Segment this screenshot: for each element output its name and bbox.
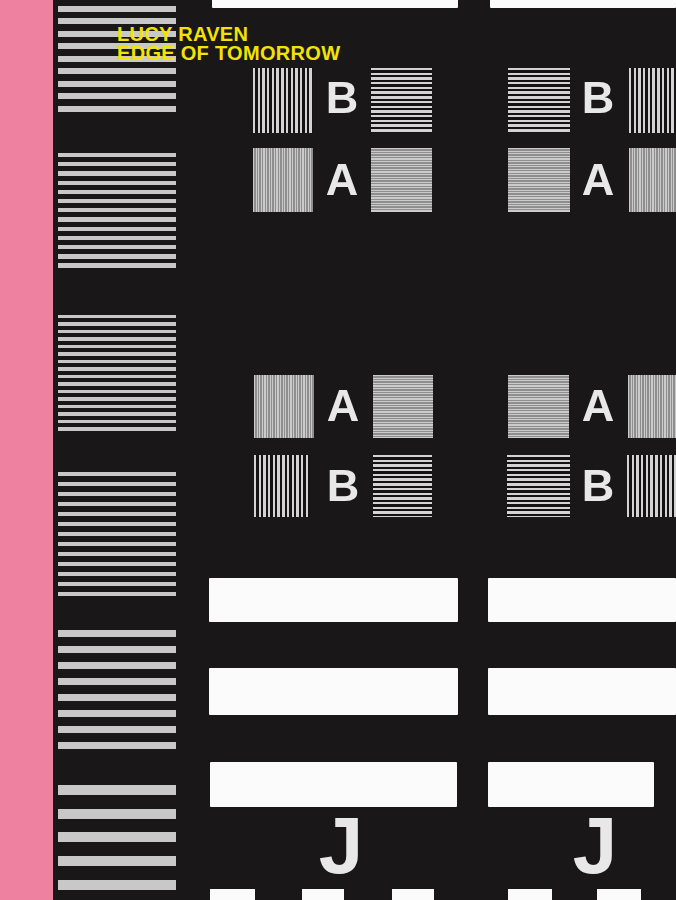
test-square-vertical-coarse bbox=[254, 455, 310, 517]
film-stripe-group-6 bbox=[58, 785, 176, 890]
test-square-vertical-coarse bbox=[627, 455, 676, 517]
film-stripe-group-4 bbox=[58, 472, 176, 597]
book-spine bbox=[0, 0, 53, 900]
test-square-vertical-coarse bbox=[629, 68, 676, 133]
test-square-vertical-coarse bbox=[253, 68, 313, 133]
film-stripe-group-2 bbox=[58, 153, 176, 268]
white-bar bbox=[488, 578, 676, 622]
cover-title-line2: EDGE OF TOMORROW bbox=[117, 44, 340, 63]
white-bar bbox=[488, 668, 676, 715]
test-square-vertical-fine bbox=[628, 375, 676, 438]
bottom-tab bbox=[392, 889, 434, 900]
test-square-horizontal-coarse bbox=[507, 455, 570, 517]
film-stripe-group-5 bbox=[58, 630, 176, 749]
bottom-tab bbox=[210, 889, 255, 900]
test-square-horizontal-coarse bbox=[508, 68, 570, 133]
film-stripe-group-3 bbox=[58, 315, 176, 431]
white-bar bbox=[488, 762, 654, 807]
marker-letter-j: J bbox=[571, 810, 619, 882]
bottom-tab bbox=[302, 889, 344, 900]
marker-letter-b: B bbox=[582, 468, 614, 504]
marker-letter-b: B bbox=[582, 80, 614, 116]
white-bar bbox=[209, 578, 458, 622]
marker-letter-a: A bbox=[582, 162, 614, 198]
frame-bar-top-right bbox=[490, 0, 676, 8]
test-square-vertical-fine bbox=[253, 148, 313, 212]
cover-title: LUCY RAVEN EDGE OF TOMORROW bbox=[117, 25, 340, 63]
marker-letter-a: A bbox=[327, 388, 359, 424]
frame-bar-top-left bbox=[212, 0, 458, 8]
bottom-tab bbox=[508, 889, 552, 900]
marker-letter-j: J bbox=[317, 810, 365, 882]
marker-letter-a: A bbox=[582, 388, 614, 424]
test-square-horizontal-fine bbox=[508, 148, 570, 212]
test-square-horizontal-fine bbox=[371, 148, 432, 212]
bottom-tab bbox=[597, 889, 641, 900]
book-cover: LUCY RAVEN EDGE OF TOMORROW B B A A A A … bbox=[0, 0, 676, 900]
test-square-vertical-fine bbox=[254, 375, 314, 438]
test-square-horizontal-fine bbox=[508, 375, 569, 438]
marker-letter-b: B bbox=[326, 80, 358, 116]
test-square-horizontal-coarse bbox=[373, 455, 432, 517]
test-square-vertical-fine bbox=[629, 148, 676, 212]
marker-letter-a: A bbox=[326, 162, 358, 198]
test-square-horizontal-coarse bbox=[371, 68, 432, 133]
marker-letter-b: B bbox=[327, 468, 359, 504]
test-square-horizontal-fine bbox=[373, 375, 433, 438]
white-bar bbox=[209, 668, 458, 715]
